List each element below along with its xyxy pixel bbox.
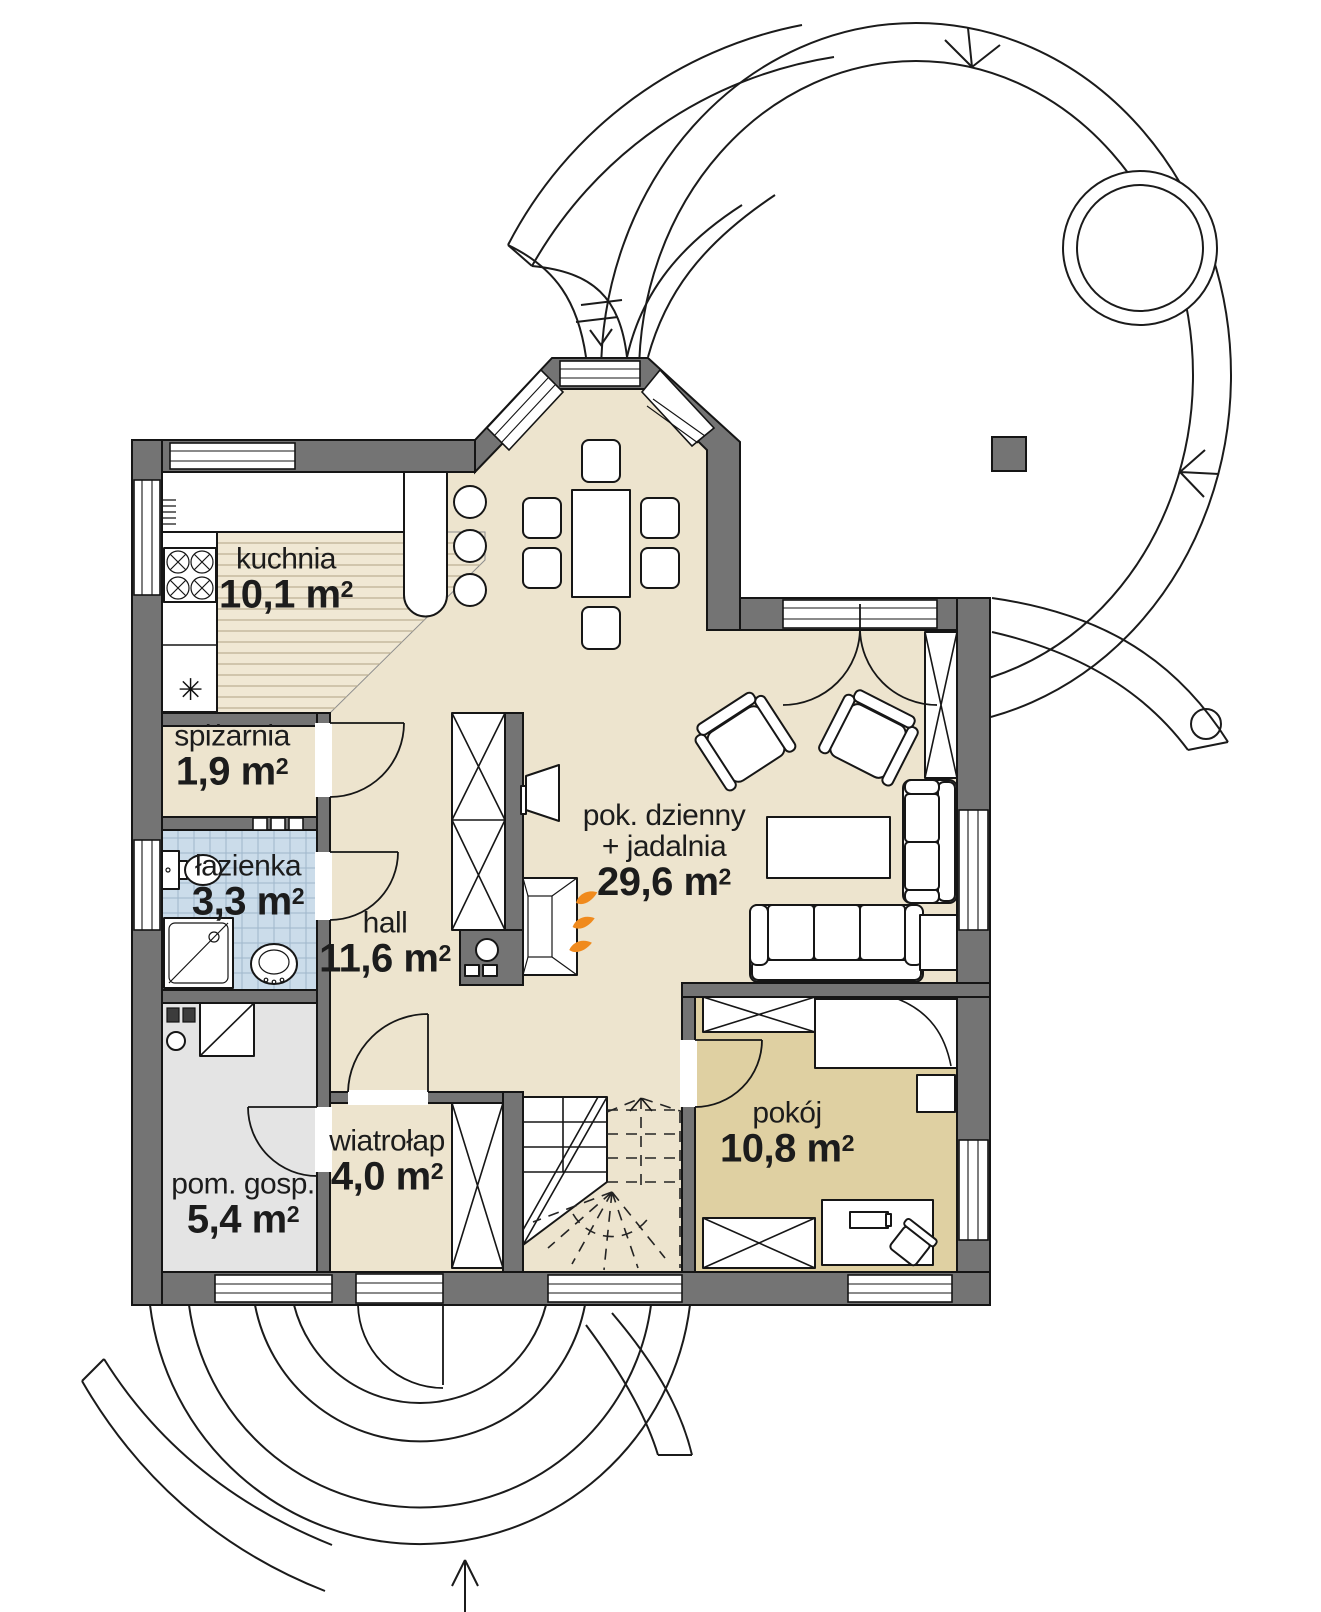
room-label-pom-gosp: pom. gosp. 5,4 m2 — [171, 1169, 314, 1242]
fireplace — [523, 878, 577, 975]
room-label-pok-dzienny: pok. dzienny + jadalnia 29,6 m2 — [583, 800, 745, 904]
floor-plan-page: ✳ — [0, 0, 1321, 1612]
kitchen-counter-top — [162, 472, 404, 532]
dining-chair — [641, 498, 679, 538]
coffee-table — [767, 817, 890, 878]
sofa-2 — [903, 780, 957, 903]
window — [848, 1275, 952, 1302]
room-name: spiżarnia — [174, 721, 290, 752]
nightstand — [917, 1075, 955, 1112]
room-area: 5,4 m2 — [171, 1200, 314, 1242]
room-area: 1,9 m2 — [174, 752, 290, 794]
room-area: 4,0 m2 — [329, 1157, 445, 1199]
room-name: łazienka — [192, 851, 304, 882]
room-label-hall: hall 11,6 m2 — [319, 908, 451, 981]
sink-icon — [251, 944, 297, 984]
bedroom-wardrobe-top — [703, 997, 815, 1032]
boiler-icon — [200, 1003, 254, 1056]
wall-living-bedroom — [682, 983, 990, 997]
room-name: pokój — [720, 1098, 854, 1129]
room-label-wiatrolap: wiatrołap 4,0 m2 — [329, 1126, 445, 1199]
window — [134, 840, 160, 930]
direction-arrow — [590, 329, 612, 345]
room-label-spizarnia: spiżarnia 1,9 m2 — [174, 721, 290, 794]
room-area: 10,1 m2 — [219, 575, 353, 617]
terrace-column — [992, 437, 1026, 471]
room-label-lazienka: łazienka 3,3 m2 — [192, 851, 304, 924]
stove-icon — [164, 548, 216, 602]
entry-closet — [452, 1103, 503, 1268]
porch-arcs — [82, 1305, 692, 1612]
room-name: pom. gosp. — [171, 1169, 314, 1200]
room-label-kuchnia: kuchnia 10,1 m2 — [219, 544, 353, 617]
window — [134, 480, 160, 595]
hall-wardrobe — [452, 713, 505, 930]
room-area: 10,8 m2 — [720, 1129, 854, 1171]
window — [959, 810, 988, 930]
room-area: 11,6 m2 — [319, 939, 451, 981]
room-label-pokoj: pokój 10,8 m2 — [720, 1098, 854, 1171]
dining-chair — [641, 548, 679, 588]
room-name: pok. dzienny — [583, 800, 745, 831]
fridge-icon: ✳ — [178, 673, 203, 708]
bar-stool — [454, 574, 486, 606]
washer-icon — [253, 818, 303, 830]
door-entrance — [356, 1274, 443, 1388]
meter-icon — [183, 1008, 195, 1022]
dining-chair — [523, 548, 561, 588]
bedroom-wardrobe-bottom — [703, 1218, 815, 1268]
bar-stool — [454, 486, 486, 518]
window — [170, 443, 295, 469]
dining-chair — [523, 498, 561, 538]
kitchen-bar — [404, 472, 447, 617]
window — [548, 1275, 682, 1302]
sofa — [750, 905, 923, 982]
wall-stairs-left — [503, 1092, 523, 1272]
dining-table — [572, 490, 630, 597]
room-name-2: + jadalnia — [583, 831, 745, 862]
room-area: 29,6 m2 — [583, 862, 745, 904]
meter-dial-icon — [167, 1032, 185, 1050]
room-name: hall — [319, 908, 451, 939]
bar-stool — [454, 530, 486, 562]
meter-icon — [167, 1008, 179, 1022]
wall-bedroom-left — [682, 983, 695, 1272]
dining-chair — [582, 607, 620, 649]
room-area: 3,3 m2 — [192, 882, 304, 924]
room-name: kuchnia — [219, 544, 353, 575]
window — [215, 1275, 332, 1302]
bed — [815, 999, 957, 1068]
window — [959, 1140, 988, 1240]
dining-chair — [582, 440, 620, 482]
shower-icon — [164, 918, 233, 988]
window — [560, 361, 640, 386]
terrace-ornament-circle — [1063, 171, 1217, 325]
wall-bath-utility — [162, 990, 317, 1003]
room-name: wiatrołap — [329, 1126, 445, 1157]
direction-arrow — [452, 1560, 478, 1612]
side-table — [920, 915, 957, 970]
media-cabinet — [460, 930, 523, 985]
